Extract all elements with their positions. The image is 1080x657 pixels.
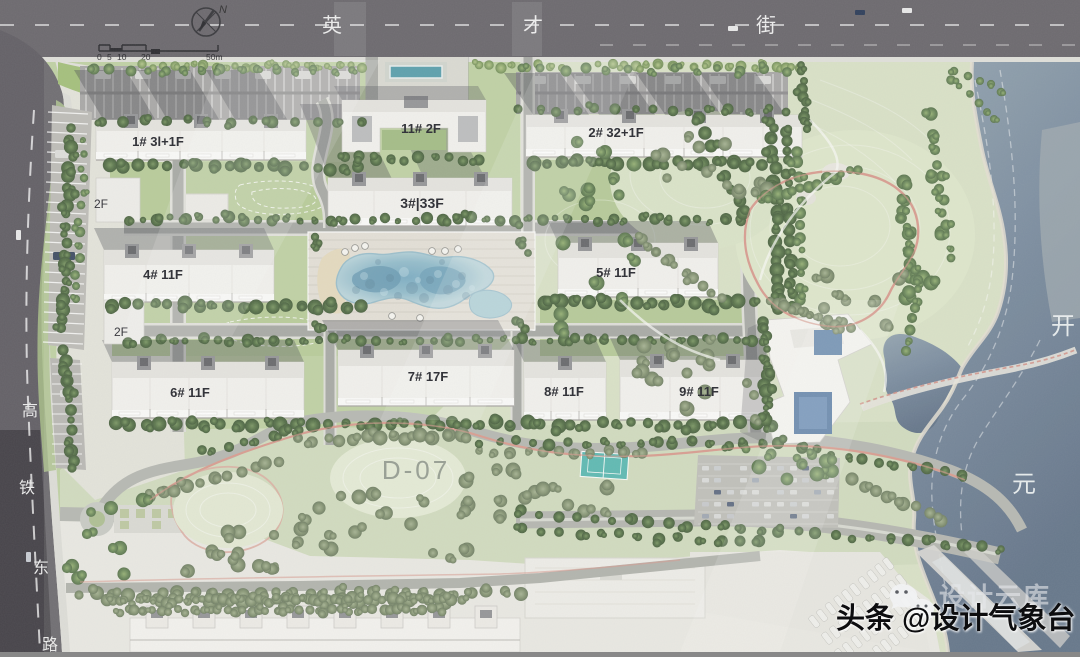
svg-text:11# 2F: 11# 2F [401,121,441,136]
svg-text:1# 3l+1F: 1# 3l+1F [132,134,184,149]
svg-text:2# 32+1F: 2# 32+1F [588,125,643,140]
svg-text:9# 11F: 9# 11F [679,384,719,399]
svg-text:6# 11F: 6# 11F [170,385,210,400]
svg-text:2F: 2F [114,325,128,339]
svg-text:8# 11F: 8# 11F [544,384,584,399]
svg-text:4# 11F: 4# 11F [143,267,183,282]
svg-text:3#|33F: 3#|33F [400,195,444,211]
svg-text:7# 17F: 7# 17F [408,369,449,384]
svg-text:D-07: D-07 [382,455,450,485]
svg-text:头条 @设计气象台: 头条 @设计气象台 [836,601,1075,635]
svg-text:2F: 2F [94,197,108,211]
svg-text:5# 11F: 5# 11F [596,265,636,280]
